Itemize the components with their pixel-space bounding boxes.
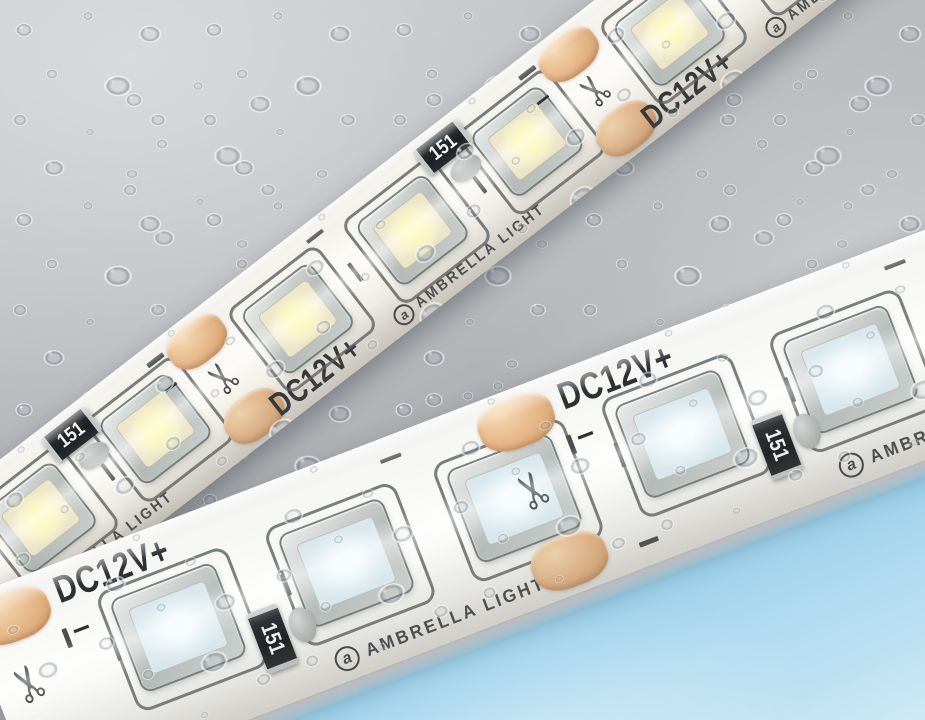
solder-tick	[565, 434, 577, 454]
led-phosphor	[296, 516, 398, 611]
circuit-trace	[884, 259, 906, 271]
led-phosphor	[632, 387, 734, 482]
circuit-trace	[347, 262, 364, 282]
solder-tick	[639, 536, 659, 548]
circuit-trace	[306, 229, 324, 244]
resistor-code: 151	[759, 426, 794, 464]
brand-logo-icon: a	[835, 449, 867, 481]
circuit-trace	[100, 463, 115, 481]
copper-solder-pad	[0, 577, 58, 653]
brand-logo-icon: a	[389, 300, 418, 329]
copper-solder-pad	[20, 716, 111, 720]
brand-logo-icon: a	[761, 13, 790, 42]
led-phosphor	[128, 580, 230, 675]
solder-tick	[61, 628, 73, 648]
circuit-trace	[472, 176, 487, 194]
resistor-code: 151	[255, 619, 290, 657]
brand-logo-icon: a	[331, 642, 363, 674]
circuit-trace	[380, 452, 402, 464]
scissors-cut-icon: ✂	[0, 653, 61, 712]
product-photo-canvas: DC12V+ 151 ✂ – a AMBR	[0, 0, 925, 720]
led-phosphor	[800, 322, 902, 417]
scissors-cut-icon: ✂	[503, 459, 565, 518]
